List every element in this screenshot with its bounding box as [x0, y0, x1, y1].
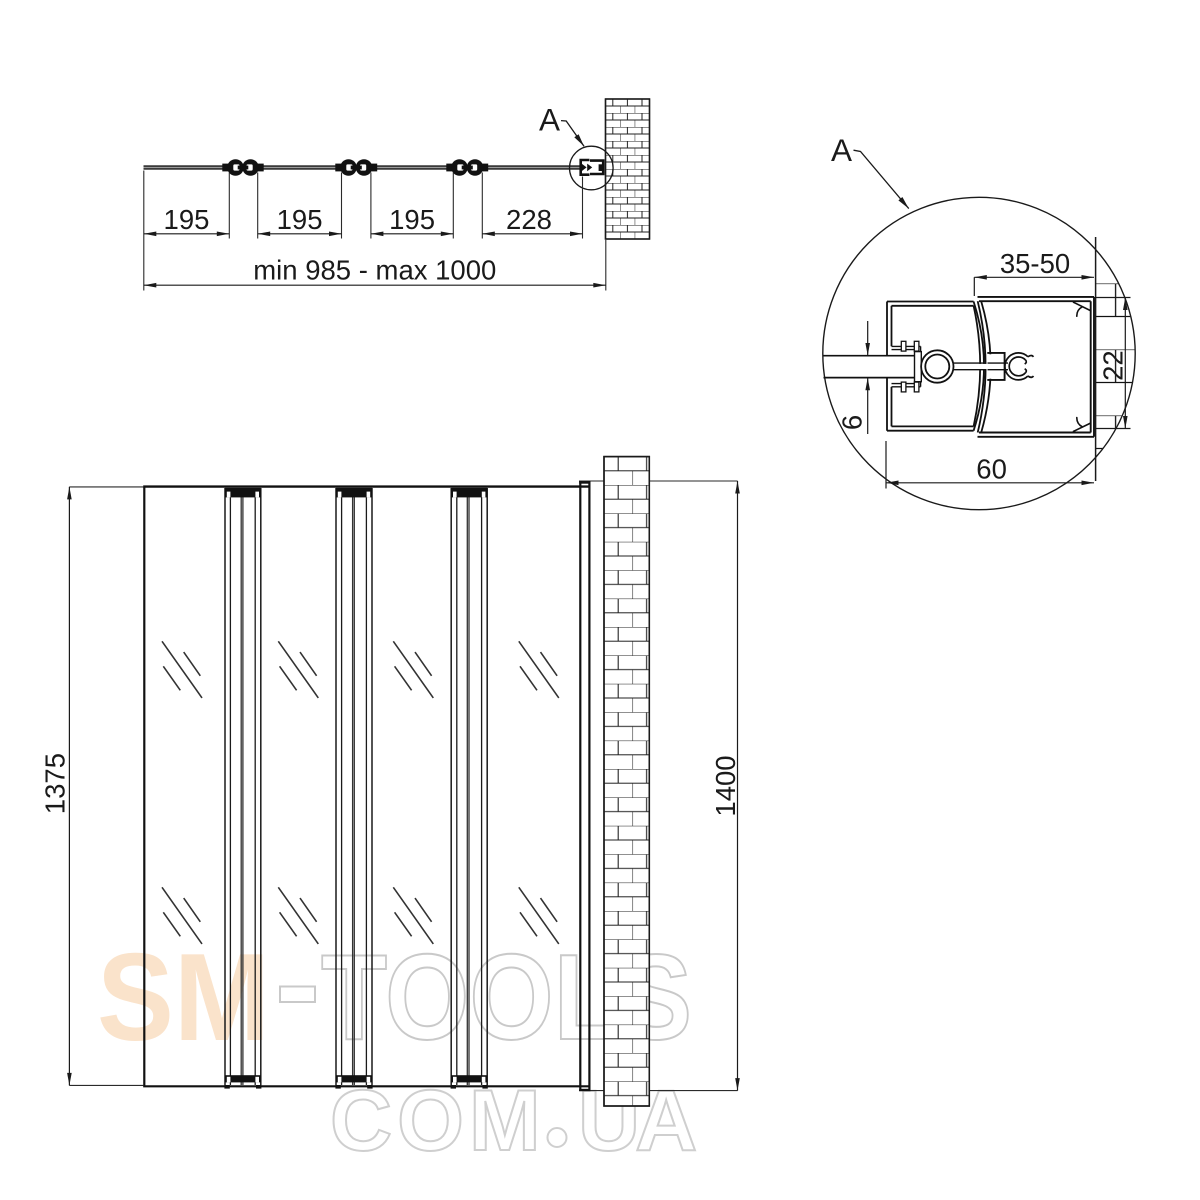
- svg-text:A: A: [831, 132, 852, 168]
- svg-text:195: 195: [164, 204, 210, 235]
- svg-text:A: A: [539, 102, 560, 138]
- svg-text:195: 195: [277, 204, 323, 235]
- svg-text:1375: 1375: [40, 753, 71, 814]
- svg-text:min 985 - max 1000: min 985 - max 1000: [253, 255, 496, 286]
- svg-text:SM: SM: [97, 929, 270, 1067]
- svg-text:228: 228: [506, 204, 552, 235]
- svg-text:35-50: 35-50: [1000, 248, 1070, 279]
- svg-text:1400: 1400: [710, 755, 741, 816]
- svg-text:60: 60: [976, 453, 1007, 484]
- svg-text:195: 195: [389, 204, 435, 235]
- svg-text:6: 6: [837, 415, 868, 430]
- svg-text:22: 22: [1098, 350, 1129, 381]
